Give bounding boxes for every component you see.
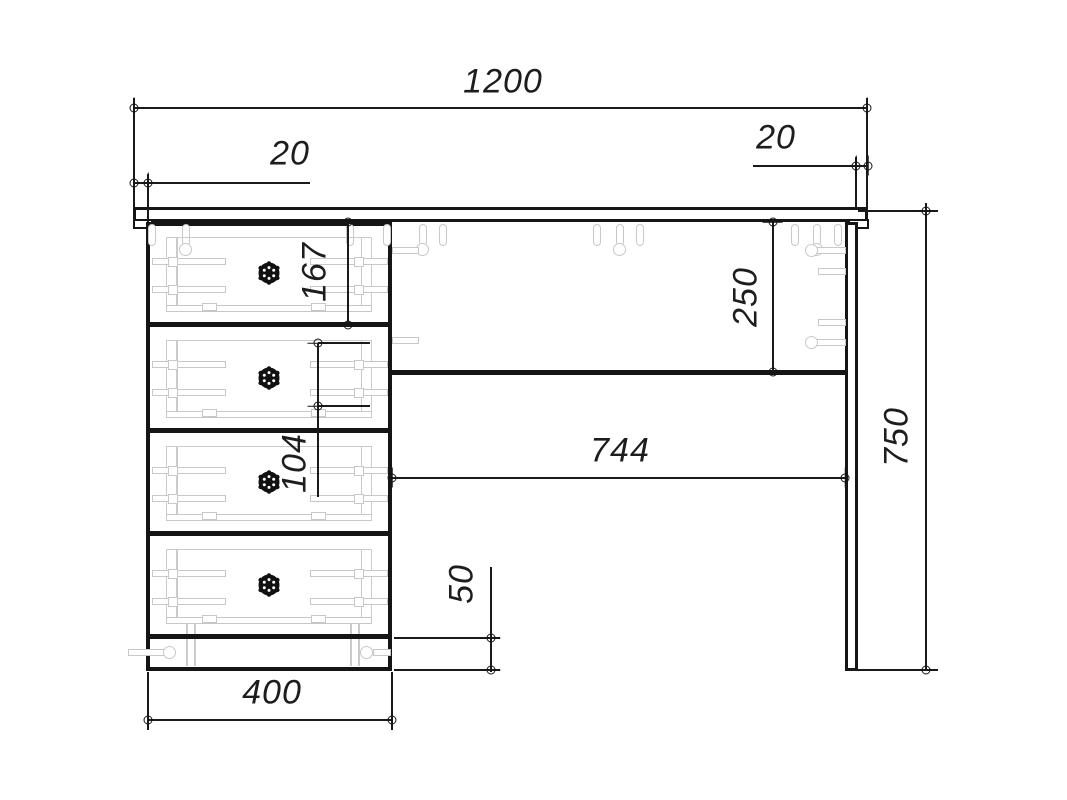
drawer-slide: [310, 361, 388, 368]
drawer-side-rail: [176, 340, 178, 412]
dim-marker-icon: [864, 162, 873, 171]
drawer-bottom-rail: [166, 514, 372, 521]
drawer-bottom-rail: [166, 305, 372, 312]
slide-bracket: [168, 597, 178, 607]
drawer-separator: [150, 428, 388, 433]
drawer-slide: [152, 258, 226, 265]
bottom-bracket: [311, 512, 326, 520]
dim-marker-icon: [487, 666, 496, 675]
dim-marker-icon: [769, 368, 778, 377]
drawer-slide: [310, 598, 388, 605]
bottom-bracket: [202, 303, 217, 311]
dim-marker-icon: [314, 339, 323, 348]
screw-icon: [818, 319, 846, 326]
drawer-slide: [310, 467, 388, 474]
bottom-bracket: [202, 409, 217, 417]
drawer-slide: [310, 495, 388, 502]
dim-line-400: [148, 719, 392, 721]
dim-line-1200: [134, 107, 867, 109]
drawer-separator: [150, 634, 388, 639]
dim-marker-icon: [922, 666, 931, 675]
dim-marker-icon: [344, 218, 353, 227]
drawer-bottom-rail: [166, 411, 372, 418]
dim-line-750: [925, 203, 927, 670]
bottom-bracket: [202, 512, 217, 520]
slide-bracket: [168, 494, 178, 504]
screw-icon: [392, 247, 419, 254]
drawer-side-rail: [176, 549, 178, 618]
dim-label-20-left: 20: [270, 135, 310, 174]
dim-marker-icon: [769, 218, 778, 227]
screw-head-icon: [805, 336, 818, 349]
slide-bracket: [354, 494, 364, 504]
dowel-pin-icon: [593, 224, 601, 246]
slide-bracket: [354, 257, 364, 267]
dim-label-20-right: 20: [756, 119, 796, 158]
slide-bracket: [168, 360, 178, 370]
dim-line-167: [347, 222, 349, 325]
bottom-bracket: [311, 303, 326, 311]
dim-line-50: [490, 567, 492, 672]
screw-head-icon: [613, 243, 626, 256]
drawer-side-rail: [361, 549, 363, 618]
screw-icon: [818, 268, 846, 275]
slide-bracket: [354, 597, 364, 607]
drawer-side-rail: [176, 446, 178, 515]
dim-marker-icon: [344, 321, 353, 330]
dim-label-104: 104: [276, 433, 315, 493]
drawer-slide: [152, 389, 226, 396]
dim-marker-icon: [922, 207, 931, 216]
dim-line-20-left: [134, 182, 310, 184]
slide-bracket: [168, 257, 178, 267]
dim-line-250: [772, 222, 774, 372]
dowel-pin-icon: [834, 224, 842, 246]
drawer-knob: [256, 365, 282, 391]
drawer-3: [150, 433, 388, 531]
dim-marker-icon: [863, 104, 872, 113]
slide-bracket: [354, 466, 364, 476]
drawer-knob: [256, 260, 282, 286]
dim-marker-icon: [130, 104, 139, 113]
dim-label-50: 50: [443, 564, 482, 604]
dowel-pin-icon: [636, 224, 644, 246]
dim-marker-icon: [130, 179, 139, 188]
drawer-slide: [152, 286, 226, 293]
dim-label-1200: 1200: [463, 63, 543, 102]
drawer-slide: [310, 570, 388, 577]
dim-marker-icon: [841, 474, 850, 483]
dim-marker-icon: [144, 179, 153, 188]
bottom-bracket: [202, 615, 217, 623]
bottom-bracket: [311, 615, 326, 623]
drawer-side-rail: [361, 237, 363, 306]
drawer-side-rail: [176, 237, 178, 306]
dim-line-104: [317, 343, 319, 497]
screw-head-icon: [805, 244, 818, 257]
dim-marker-icon: [388, 716, 397, 725]
drawer-slide: [152, 467, 226, 474]
drawer-slide: [310, 389, 388, 396]
screw-icon: [815, 247, 846, 254]
drawer-side-rail: [361, 446, 363, 515]
slide-bracket: [168, 466, 178, 476]
dim-label-744: 744: [590, 432, 650, 471]
dim-label-167: 167: [296, 242, 335, 302]
dim-marker-icon: [144, 716, 153, 725]
drawer-slide: [152, 570, 226, 577]
dim-marker-icon: [388, 474, 397, 483]
drawer-side-rail: [361, 340, 363, 412]
dowel-pin-icon: [791, 224, 799, 246]
screw-head-icon: [163, 646, 176, 659]
dim-label-400: 400: [242, 674, 302, 713]
drawer-1: [150, 224, 388, 322]
right-side-panel: [845, 222, 858, 671]
tabletop: [133, 207, 868, 222]
drawer-separator: [150, 531, 388, 536]
slide-bracket: [354, 285, 364, 295]
dowel-pin-icon: [439, 224, 447, 246]
drawer-knob: [256, 572, 282, 598]
screw-icon: [373, 649, 391, 656]
dim-marker-icon: [314, 402, 323, 411]
dim-label-750: 750: [878, 407, 917, 467]
slide-bracket: [168, 569, 178, 579]
dim-line-744: [392, 477, 845, 479]
slide-bracket: [354, 569, 364, 579]
drawer-4: [150, 536, 388, 634]
drawer-slide: [152, 598, 226, 605]
technical-drawing-canvas: 1200 20 20 167 104 250 744 750 50 400: [0, 0, 1067, 800]
drawer-slide: [152, 361, 226, 368]
dim-marker-icon: [852, 162, 861, 171]
slide-bracket: [168, 388, 178, 398]
screw-icon: [815, 339, 846, 346]
screw-head-icon: [360, 646, 373, 659]
slide-bracket: [354, 388, 364, 398]
drawer-slide: [152, 495, 226, 502]
screw-icon: [128, 649, 166, 656]
slide-bracket: [354, 360, 364, 370]
drawer-bottom-rail: [166, 617, 372, 624]
slide-bracket: [168, 285, 178, 295]
dim-label-250: 250: [727, 267, 766, 327]
dim-marker-icon: [487, 634, 496, 643]
screw-icon: [392, 337, 419, 344]
